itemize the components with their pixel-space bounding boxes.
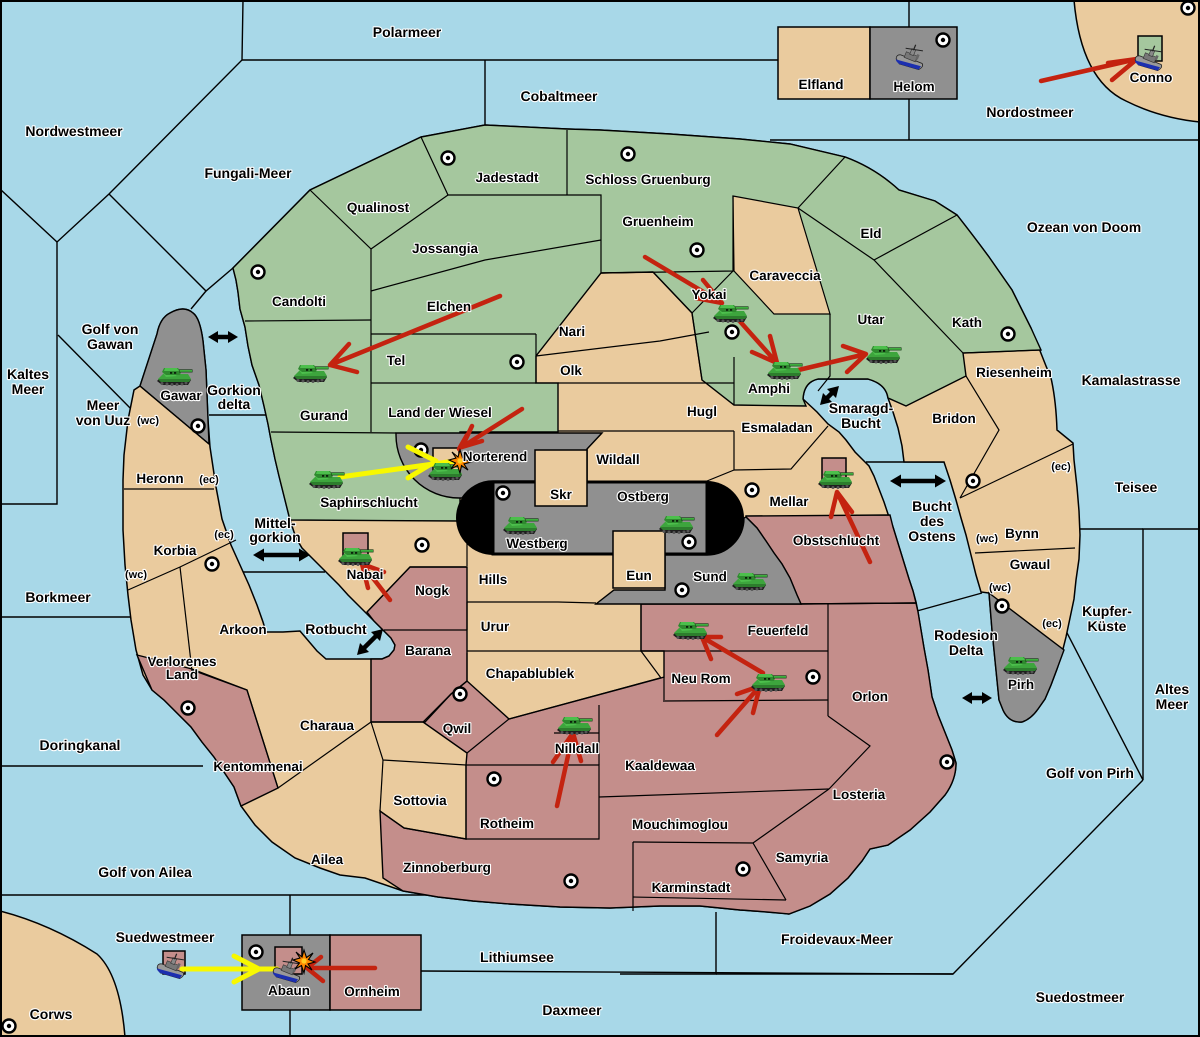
svg-text:Rodesion: Rodesion: [934, 627, 998, 643]
svg-text:Hugl: Hugl: [687, 404, 717, 419]
svg-text:Pirh: Pirh: [1008, 677, 1034, 692]
svg-text:Saphirschlucht: Saphirschlucht: [320, 495, 418, 510]
svg-text:Qwil: Qwil: [443, 721, 472, 736]
svg-text:Kaltes: Kaltes: [7, 366, 49, 382]
svg-text:Küste: Küste: [1088, 618, 1127, 634]
svg-text:Korbia: Korbia: [154, 543, 197, 558]
svg-text:Qualinost: Qualinost: [347, 200, 410, 215]
svg-text:Bynn: Bynn: [1005, 526, 1039, 541]
svg-text:Daxmeer: Daxmeer: [542, 1002, 602, 1018]
svg-text:Riesenheim: Riesenheim: [976, 365, 1052, 380]
svg-text:von Uuz: von Uuz: [76, 412, 130, 428]
svg-text:Utar: Utar: [857, 312, 885, 327]
svg-text:(ec): (ec): [1051, 461, 1071, 473]
svg-text:Sund: Sund: [693, 569, 727, 584]
svg-text:Gawar: Gawar: [160, 388, 202, 403]
svg-text:Eld: Eld: [860, 226, 881, 241]
svg-text:Ozean von Doom: Ozean von Doom: [1027, 219, 1141, 235]
svg-text:Delta: Delta: [949, 642, 983, 658]
svg-text:(ec): (ec): [1042, 618, 1062, 630]
svg-text:Meer: Meer: [1156, 696, 1189, 712]
svg-text:Rotheim: Rotheim: [480, 816, 534, 831]
svg-text:Samyria: Samyria: [776, 850, 829, 865]
svg-text:Nogk: Nogk: [415, 583, 449, 598]
svg-text:Nabai: Nabai: [347, 567, 384, 582]
svg-text:Mellar: Mellar: [769, 494, 809, 509]
svg-text:Feuerfeld: Feuerfeld: [748, 623, 809, 638]
svg-text:(ec): (ec): [199, 474, 219, 486]
svg-text:Chapablublek: Chapablublek: [486, 666, 575, 681]
svg-text:Cobaltmeer: Cobaltmeer: [520, 88, 598, 104]
svg-text:Gwaul: Gwaul: [1010, 557, 1051, 572]
svg-text:Nilldall: Nilldall: [555, 741, 599, 756]
svg-text:Smaragd-: Smaragd-: [829, 400, 894, 416]
svg-text:Ailea: Ailea: [311, 852, 344, 867]
svg-text:Nordostmeer: Nordostmeer: [986, 104, 1074, 120]
svg-text:Helom: Helom: [893, 79, 934, 94]
svg-text:Corws: Corws: [30, 1006, 73, 1022]
svg-text:Conno: Conno: [1130, 70, 1173, 85]
svg-text:Heronn: Heronn: [136, 471, 183, 486]
svg-text:Neu Rom: Neu Rom: [671, 671, 730, 686]
svg-text:Bridon: Bridon: [932, 411, 976, 426]
svg-text:Nari: Nari: [559, 324, 585, 339]
svg-text:Sottovia: Sottovia: [393, 793, 447, 808]
svg-text:Ornheim: Ornheim: [344, 984, 400, 999]
svg-text:Candolti: Candolti: [272, 294, 326, 309]
svg-text:Arkoon: Arkoon: [219, 622, 266, 637]
svg-text:Mouchimoglou: Mouchimoglou: [632, 817, 728, 832]
svg-text:Elchen: Elchen: [427, 299, 471, 314]
svg-text:(wc): (wc): [989, 582, 1011, 594]
svg-text:Eun: Eun: [626, 568, 652, 583]
svg-text:Suedostmeer: Suedostmeer: [1036, 989, 1125, 1005]
svg-text:Bucht: Bucht: [912, 498, 952, 514]
svg-text:Doringkanal: Doringkanal: [40, 737, 121, 753]
svg-text:Yokai: Yokai: [691, 287, 726, 302]
svg-text:Land: Land: [166, 667, 198, 682]
svg-text:Hills: Hills: [479, 572, 508, 587]
svg-text:delta: delta: [218, 396, 251, 412]
svg-text:Elfland: Elfland: [798, 77, 843, 92]
svg-text:(wc): (wc): [137, 415, 159, 427]
svg-text:Meer: Meer: [87, 397, 120, 413]
svg-text:Kath: Kath: [952, 315, 982, 330]
svg-text:gorkion: gorkion: [249, 529, 300, 545]
svg-text:Gawan: Gawan: [87, 336, 133, 352]
svg-text:(ec): (ec): [214, 529, 234, 541]
svg-text:Amphi: Amphi: [748, 381, 790, 396]
svg-text:Norterend: Norterend: [463, 449, 528, 464]
svg-text:Olk: Olk: [560, 363, 582, 378]
svg-text:Urur: Urur: [481, 619, 510, 634]
svg-text:Meer: Meer: [12, 381, 45, 397]
svg-text:Kentommenai: Kentommenai: [213, 759, 302, 774]
svg-text:(wc): (wc): [125, 569, 147, 581]
svg-text:Schloss Gruenburg: Schloss Gruenburg: [585, 172, 710, 187]
svg-text:Ostberg: Ostberg: [617, 489, 669, 504]
svg-text:Golf von Pirh: Golf von Pirh: [1046, 765, 1134, 781]
svg-text:Kamalastrasse: Kamalastrasse: [1082, 372, 1181, 388]
svg-text:Obstschlucht: Obstschlucht: [793, 533, 880, 548]
svg-text:Esmaladan: Esmaladan: [741, 420, 812, 435]
svg-text:Suedwestmeer: Suedwestmeer: [116, 929, 215, 945]
svg-text:Bucht: Bucht: [841, 415, 881, 431]
svg-text:Caraveccia: Caraveccia: [749, 268, 821, 283]
svg-text:Altes: Altes: [1155, 681, 1189, 697]
svg-text:Golf von Ailea: Golf von Ailea: [98, 864, 192, 880]
svg-text:Fungali-Meer: Fungali-Meer: [204, 165, 292, 181]
svg-text:Lithiumsee: Lithiumsee: [480, 949, 554, 965]
svg-text:Losteria: Losteria: [833, 787, 886, 802]
svg-text:Zinnoberburg: Zinnoberburg: [403, 860, 491, 875]
svg-text:Jossangia: Jossangia: [412, 241, 479, 256]
svg-text:Skr: Skr: [550, 487, 573, 502]
svg-text:Gruenheim: Gruenheim: [622, 214, 693, 229]
svg-text:Westberg: Westberg: [506, 536, 567, 551]
svg-text:Orlon: Orlon: [852, 689, 888, 704]
svg-text:Borkmeer: Borkmeer: [25, 589, 91, 605]
svg-text:des: des: [920, 513, 944, 529]
svg-text:Rotbucht: Rotbucht: [305, 621, 367, 637]
svg-text:Polarmeer: Polarmeer: [373, 24, 442, 40]
svg-text:Barana: Barana: [405, 643, 451, 658]
svg-text:Jadestadt: Jadestadt: [475, 170, 539, 185]
svg-text:Kaaldewaa: Kaaldewaa: [625, 758, 695, 773]
svg-text:Kupfer-: Kupfer-: [1082, 603, 1132, 619]
svg-text:Teisee: Teisee: [1115, 479, 1158, 495]
svg-text:Tel: Tel: [387, 353, 406, 368]
svg-text:Land der Wiesel: Land der Wiesel: [388, 405, 491, 420]
svg-text:Wildall: Wildall: [596, 452, 639, 467]
svg-text:Abaun: Abaun: [268, 983, 310, 998]
svg-text:(wc): (wc): [976, 533, 998, 545]
svg-text:Nordwestmeer: Nordwestmeer: [25, 123, 123, 139]
svg-text:Golf von: Golf von: [82, 321, 139, 337]
svg-text:Gurand: Gurand: [300, 408, 348, 423]
svg-text:Charaua: Charaua: [300, 718, 355, 733]
svg-text:Froidevaux-Meer: Froidevaux-Meer: [781, 931, 894, 947]
svg-text:Karminstadt: Karminstadt: [652, 880, 731, 895]
svg-text:Ostens: Ostens: [908, 528, 956, 544]
